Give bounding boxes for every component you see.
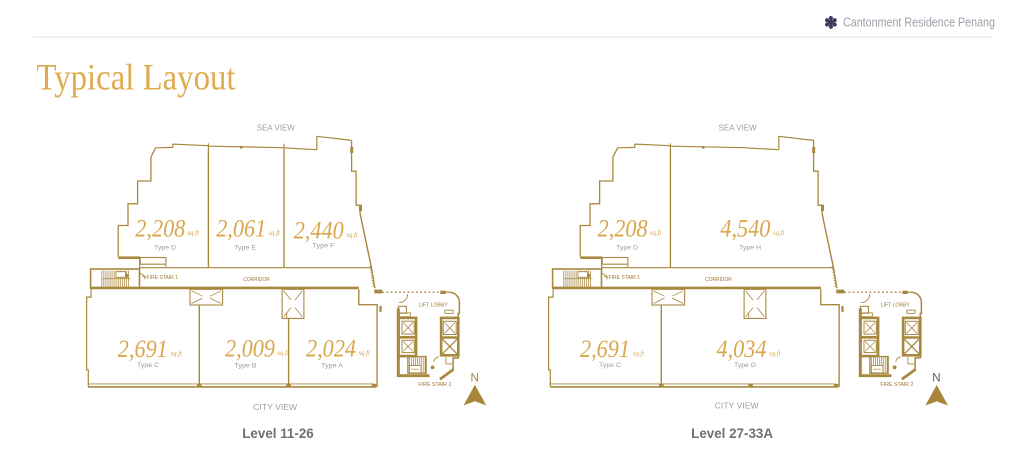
svg-text:CITY VIEW: CITY VIEW <box>715 402 760 411</box>
svg-text:Type A: Type A <box>321 363 344 370</box>
svg-text:sq.ft: sq.ft <box>773 230 786 237</box>
svg-text:Typical Layout: Typical Layout <box>37 58 237 99</box>
svg-text:sq.ft: sq.ft <box>633 350 646 357</box>
svg-text:sq.ft: sq.ft <box>346 232 359 239</box>
svg-text:FIRE STAIR 1: FIRE STAIR 1 <box>147 275 179 281</box>
svg-text:N: N <box>932 373 940 385</box>
svg-text:sq.ft: sq.ft <box>359 350 372 357</box>
svg-text:CITY VIEW: CITY VIEW <box>253 403 298 412</box>
svg-text:Type E: Type E <box>234 245 257 252</box>
svg-text:Level 27-33A: Level 27-33A <box>691 426 773 441</box>
svg-text:CORRIDOR: CORRIDOR <box>243 277 270 283</box>
svg-text:2,024: 2,024 <box>306 335 356 362</box>
svg-text:4,034: 4,034 <box>717 336 767 363</box>
svg-text:Type D: Type D <box>154 245 176 252</box>
svg-text:SEA VIEW: SEA VIEW <box>257 123 296 132</box>
svg-text:Cantonment Residence Penang: Cantonment Residence Penang <box>843 16 995 30</box>
svg-text:sq.ft: sq.ft <box>188 230 201 237</box>
svg-text:sq.ft: sq.ft <box>269 230 282 237</box>
svg-text:sq.ft: sq.ft <box>650 230 663 237</box>
svg-text:sq.ft: sq.ft <box>171 350 184 357</box>
svg-text:2,009: 2,009 <box>225 335 275 362</box>
svg-text:2,691: 2,691 <box>118 336 168 363</box>
svg-text:FIRE STAIR 1: FIRE STAIR 1 <box>609 275 641 281</box>
svg-text:Type G: Type G <box>734 362 756 369</box>
svg-text:SEA VIEW: SEA VIEW <box>719 123 758 132</box>
svg-text:FIRE STAIR 2: FIRE STAIR 2 <box>418 382 451 388</box>
svg-text:4,540: 4,540 <box>720 216 770 243</box>
svg-text:sq.ft: sq.ft <box>769 350 782 357</box>
svg-text:LIFT LOBBY: LIFT LOBBY <box>419 303 448 309</box>
svg-text:Type C: Type C <box>599 362 621 369</box>
svg-text:2,208: 2,208 <box>135 216 185 243</box>
svg-text:Type B: Type B <box>235 363 258 370</box>
svg-text:CORRIDOR: CORRIDOR <box>705 277 732 283</box>
svg-text:Type H: Type H <box>739 245 761 252</box>
svg-text:2,691: 2,691 <box>580 336 630 363</box>
svg-text:N: N <box>470 373 478 385</box>
svg-text:LIFT LOBBY: LIFT LOBBY <box>881 303 910 309</box>
svg-text:sq.ft: sq.ft <box>278 350 291 357</box>
svg-text:2,208: 2,208 <box>598 216 648 243</box>
svg-text:FIRE STAIR 2: FIRE STAIR 2 <box>880 382 913 388</box>
svg-text:2,440: 2,440 <box>294 218 344 245</box>
svg-text:Type D: Type D <box>616 245 638 252</box>
svg-text:Level 11-26: Level 11-26 <box>242 426 313 441</box>
svg-text:Type F: Type F <box>313 242 335 249</box>
svg-text:2,061: 2,061 <box>216 216 266 243</box>
svg-text:Type C: Type C <box>137 362 159 369</box>
